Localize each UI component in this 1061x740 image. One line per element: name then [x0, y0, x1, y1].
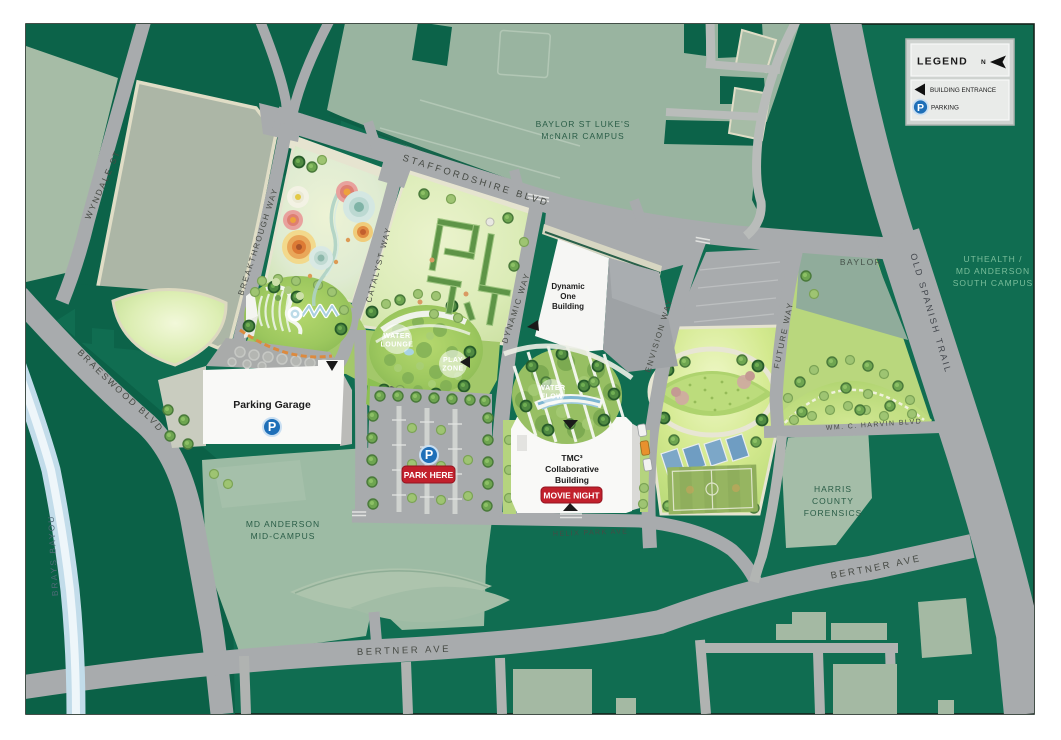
svg-text:Building: Building [555, 475, 589, 485]
svg-text:Dynamic: Dynamic [551, 282, 585, 291]
svg-text:FORENSICS: FORENSICS [804, 508, 863, 518]
svg-text:BAYLOR: BAYLOR [840, 257, 882, 267]
svg-text:COUNTY: COUNTY [812, 496, 854, 506]
svg-text:McNAIR CAMPUS: McNAIR CAMPUS [541, 131, 624, 141]
svg-text:PARK HERE: PARK HERE [404, 470, 454, 480]
svg-text:WATER: WATER [383, 333, 410, 340]
svg-text:FLOW: FLOW [541, 394, 564, 401]
svg-text:PARKING: PARKING [931, 105, 959, 112]
svg-text:LOUNGE: LOUNGE [381, 342, 414, 349]
svg-text:N: N [981, 59, 986, 66]
svg-text:MD ANDERSON: MD ANDERSON [246, 519, 320, 529]
svg-text:ZONE: ZONE [442, 366, 463, 373]
svg-text:UTHEALTH /: UTHEALTH / [964, 254, 1023, 264]
svg-text:MID-CAMPUS: MID-CAMPUS [251, 531, 316, 541]
svg-text:TMC³: TMC³ [561, 453, 582, 463]
svg-text:HARRIS: HARRIS [814, 484, 852, 494]
svg-text:SOUTH CAMPUS: SOUTH CAMPUS [953, 278, 1033, 288]
svg-text:MD ANDERSON: MD ANDERSON [956, 266, 1030, 276]
svg-text:One: One [560, 292, 576, 301]
svg-text:BUILDING ENTRANCE: BUILDING ENTRANCE [930, 87, 996, 94]
svg-text:BAYLOR ST LUKE'S: BAYLOR ST LUKE'S [536, 119, 631, 129]
svg-text:PLAY: PLAY [443, 357, 463, 364]
svg-text:Parking Garage: Parking Garage [233, 399, 311, 411]
svg-text:LEGEND: LEGEND [917, 56, 968, 68]
svg-text:Collaborative: Collaborative [545, 464, 599, 474]
svg-text:MOVIE NIGHT: MOVIE NIGHT [543, 491, 600, 501]
svg-text:P: P [917, 102, 924, 114]
svg-text:Building: Building [552, 302, 584, 311]
svg-text:WATER: WATER [538, 385, 565, 392]
